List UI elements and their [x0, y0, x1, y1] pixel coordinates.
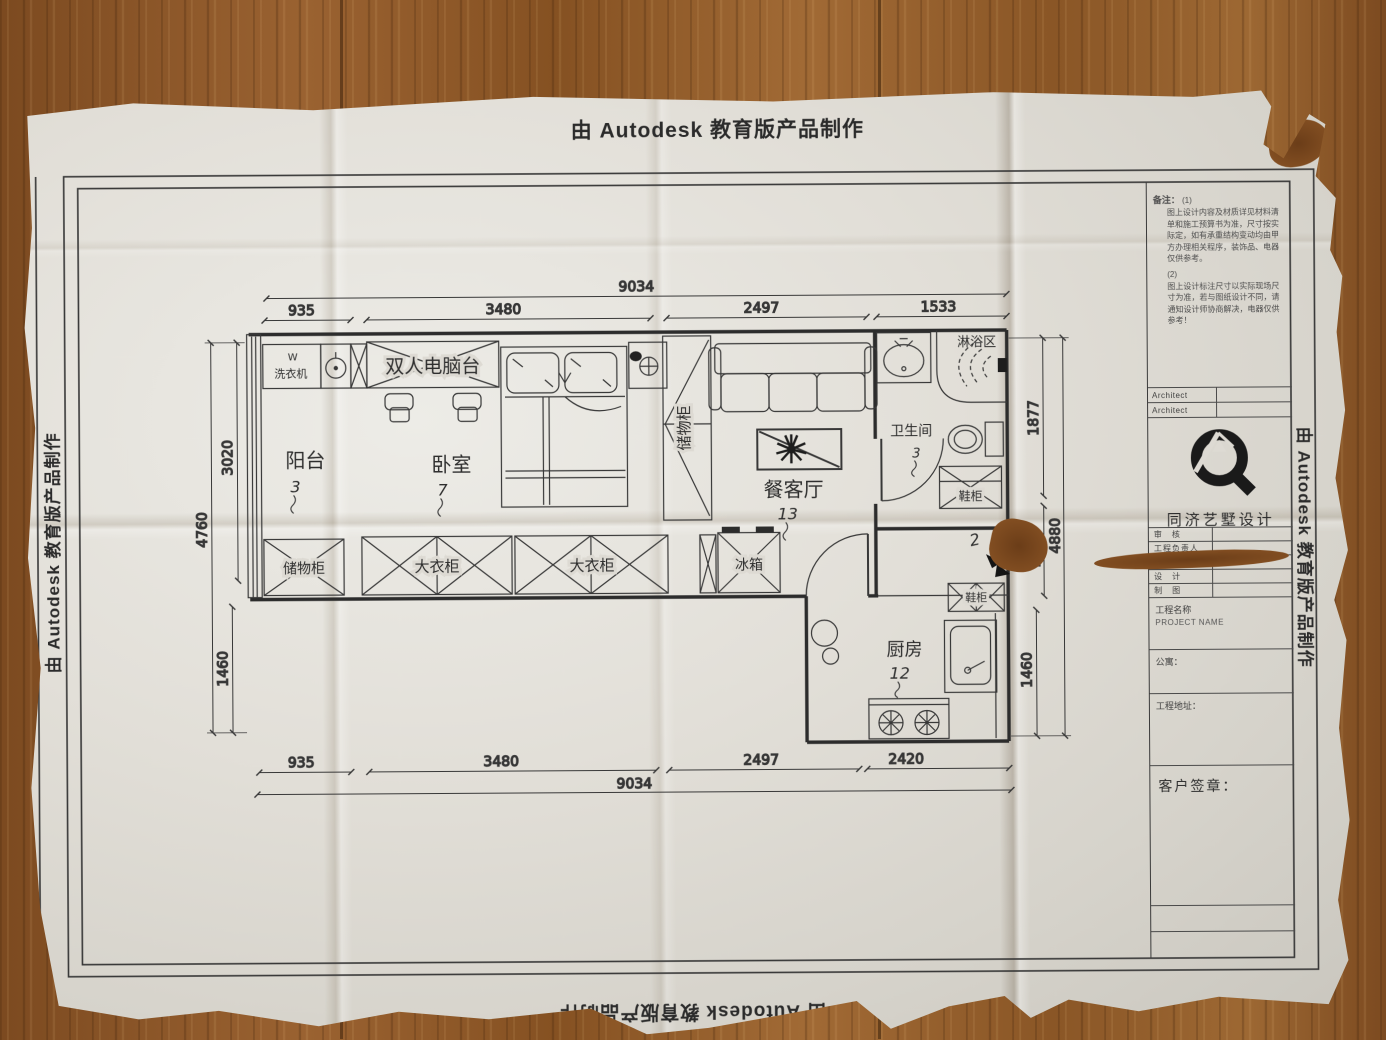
sheet-frame: [36, 169, 1319, 977]
room-label-balcony: 阳台: [285, 448, 325, 472]
dim-bottom-seg3: 2497: [743, 752, 779, 768]
architect-row-2: Architect: [1148, 401, 1292, 417]
fridge-label: 冰箱: [735, 558, 763, 574]
dim-bottom-overall: 9034: [617, 776, 653, 792]
hall-shoe-label: 鞋柜: [965, 590, 987, 604]
note2-text: 图上设计标注尺寸以实际现场尺寸为准，若与图纸设计不同，请通知设计师协商解决，电器…: [1167, 280, 1285, 327]
dim-left-outer: 4760: [195, 512, 211, 548]
signature-label: 客户签章：: [1150, 765, 1294, 796]
architect-label-1: Architect: [1148, 388, 1217, 402]
entry-door: [806, 534, 868, 596]
room-label-living: 餐客厅: [763, 477, 823, 501]
qa-logo-icon: [1181, 423, 1259, 501]
dim-left-seg2: 1460: [216, 651, 232, 687]
room-num-kitchen: 12: [889, 664, 909, 683]
bed: [501, 346, 628, 507]
room-num-bedroom: 7: [437, 480, 448, 499]
wardrobe2-label: 大衣柜: [569, 556, 614, 574]
drafting-row: 制 图: [1149, 582, 1293, 597]
note1-text: 图上设计内容及材质详见材料清单和施工预算书为准，尺寸按实际定，如有承重结构变动均…: [1167, 206, 1285, 265]
dim-top-overall: 9034: [618, 279, 654, 295]
architect-row-1: Architect: [1148, 386, 1292, 402]
apartment-section: 公寓：: [1150, 648, 1294, 693]
room-label-shower: 淋浴区: [957, 335, 996, 350]
room-label-bedroom: 卧室: [431, 452, 471, 476]
design-label: 设 计: [1149, 570, 1213, 583]
notes-section: 备注： (1) 图上设计内容及材质详见材料清单和施工预算书为准，尺寸按实际定，如…: [1147, 181, 1292, 387]
room-num-balcony: 3: [290, 477, 300, 496]
spare-row-1: [1151, 904, 1295, 931]
plant-icon: [776, 434, 806, 463]
washer-label: 洗衣机: [274, 366, 307, 380]
room-num-living: 13: [777, 504, 797, 523]
project-name-section: 工程名称 PROJECT NAME: [1149, 596, 1293, 649]
signature-section: 客户签章：: [1150, 764, 1295, 905]
dim-bottom-seg1: 935: [288, 755, 315, 771]
dim-bottom-seg4: 2420: [888, 752, 924, 768]
storage-label: 储物柜: [283, 561, 325, 577]
address-section: 工程地址：: [1150, 692, 1294, 765]
address-label: 工程地址：: [1150, 693, 1294, 712]
dim-top-seg3: 2497: [744, 300, 780, 316]
architect-label-2: Architect: [1148, 403, 1217, 417]
closet-column-label: 储物柜: [675, 405, 693, 450]
floor-plan-paper: 由 Autodesk 教育版产品制作 由 Autodesk 教育版产品制作 由 …: [13, 80, 1359, 1040]
title-block: 备注： (1) 图上设计内容及材质详见材料清单和施工预算书为准，尺寸按实际定，如…: [1146, 181, 1296, 958]
computer-desk: [367, 341, 499, 422]
note1-number: (1): [1182, 196, 1192, 205]
washing-machine: [263, 344, 367, 389]
project-name-en: PROJECT NAME: [1149, 615, 1293, 627]
bath-shoe-label: 鞋柜: [959, 488, 983, 503]
note2-number: (2): [1167, 270, 1177, 279]
nightstand-lamp: [629, 342, 667, 388]
review-label: 审 核: [1149, 528, 1213, 541]
stove: [869, 698, 949, 738]
toilet: [948, 422, 1003, 456]
sofa: [709, 343, 877, 412]
dim-left-seg1: 3020: [220, 440, 236, 476]
dim-right-overall: 4880: [1048, 518, 1064, 554]
room-label-bath: 卫生间: [890, 423, 932, 439]
dim-right-seg3: 1460: [1020, 652, 1036, 688]
coffee-table: [757, 429, 841, 470]
dim-top-seg2: 3480: [486, 302, 522, 318]
company-logo-section: 同济艺墅设计: [1148, 416, 1293, 527]
gas-meter: [811, 620, 838, 664]
dim-top-seg1: 935: [288, 303, 315, 319]
dim-bottom-seg2: 3480: [483, 754, 519, 770]
entry-number: 2: [968, 529, 982, 550]
apartment-label: 公寓：: [1150, 649, 1294, 668]
notes-label: 备注：: [1153, 195, 1180, 205]
dim-right-seg1: 1877: [1026, 400, 1042, 436]
project-name-label: 工程名称: [1149, 597, 1293, 616]
kitchen-sink: [944, 620, 996, 692]
review-row: 审 核: [1149, 526, 1293, 541]
narrow-cabinet: [700, 535, 716, 593]
bath-sink: [877, 333, 931, 383]
washer-w-label: W: [288, 352, 298, 363]
desk-label: 双人电脑台: [385, 355, 480, 378]
company-name: 同济艺墅设计: [1149, 508, 1293, 527]
balcony-window: [247, 335, 263, 598]
room-label-kitchen: 厨房: [886, 640, 922, 661]
dim-top-seg4: 1533: [921, 299, 957, 315]
paper-tear: [1265, 116, 1331, 170]
room-num-bath: 3: [912, 447, 920, 462]
design-row: 设 计: [1149, 568, 1293, 583]
spare-row-2: [1151, 930, 1295, 957]
wardrobe1-label: 大衣柜: [414, 557, 459, 575]
drafting-label: 制 图: [1149, 584, 1213, 597]
